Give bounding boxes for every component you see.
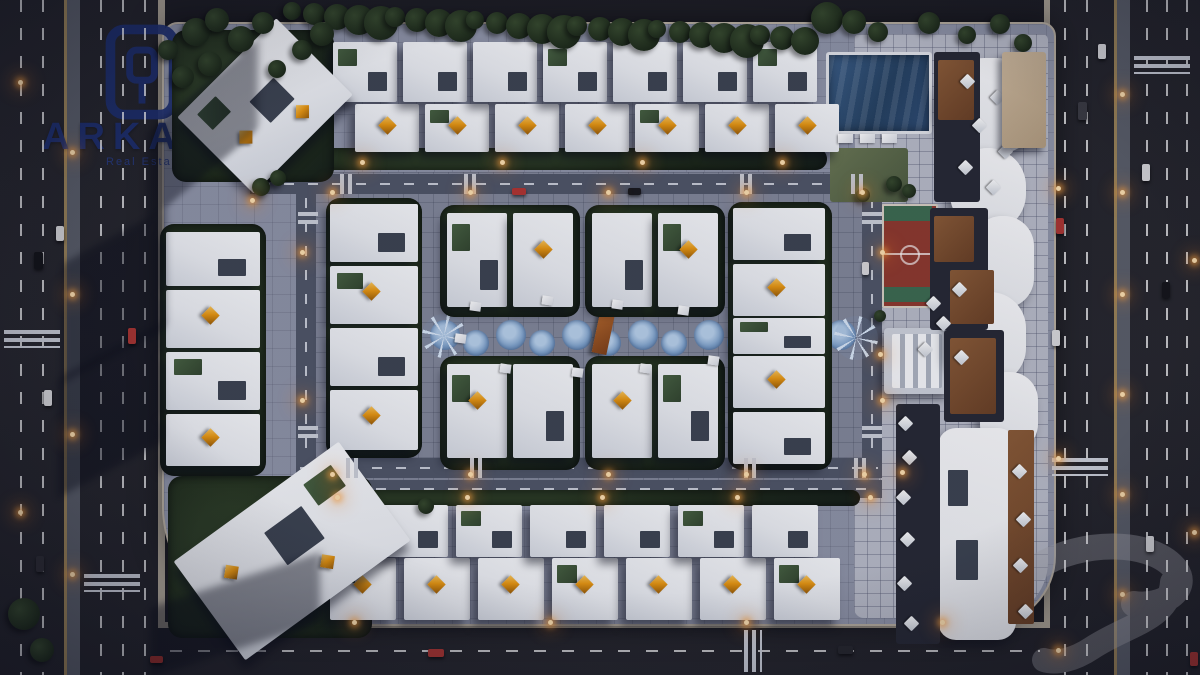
skylight-pyramid [224,565,239,580]
street-light [744,190,749,195]
street-light [640,160,645,165]
skylight-pyramid [534,240,552,258]
water-ripple [529,330,555,356]
water-ripple [496,320,526,350]
villa-building [330,204,418,262]
villa-building [700,558,766,620]
street-light [300,250,305,255]
street-light [468,190,473,195]
roof-court [492,531,512,548]
car [34,252,43,269]
roof-garden [452,375,470,401]
villa-building [447,364,507,458]
street-light [70,150,75,155]
villa-building [774,558,840,620]
pergola [884,328,950,394]
roof-garden [663,375,681,401]
skylight-pyramid [362,282,380,300]
seat-pad [541,295,553,305]
sun-lounger [860,134,875,143]
roof-garden [683,511,703,526]
skylight-pyramid [362,406,380,424]
street-light [868,495,873,500]
tree [886,176,902,192]
tree [198,52,222,76]
roof-court [784,234,812,251]
roof-garden [452,224,470,250]
street-light [330,472,335,477]
roof-court [714,531,734,548]
tree [8,598,40,630]
street-light [880,398,885,403]
tree [958,26,976,44]
villa-building [530,505,596,557]
seat-pad [677,305,689,315]
street-light [70,572,75,577]
street-light [878,352,883,357]
crosswalk [1052,458,1108,476]
street-light [1192,258,1197,263]
tree [30,638,54,662]
seat-pad [639,363,651,373]
car [1078,102,1087,120]
roof-garden [557,565,577,582]
lane-marking [305,198,307,456]
tree [669,21,691,43]
street-light [780,160,785,165]
skylight-pyramid [518,117,536,135]
roof-garden [303,465,346,506]
tree [811,2,843,34]
roof-garden [548,49,567,66]
skylight-pyramid [378,117,396,135]
villa-building [613,42,677,102]
tree [791,27,819,55]
skylight-pyramid [728,117,746,135]
villa-building [447,213,507,307]
villa-building [166,232,260,286]
tree [205,8,229,32]
skylight-pyramid [767,370,785,388]
street-light [606,472,611,477]
villa-building [552,558,618,620]
tree [270,170,286,186]
crosswalk [1134,56,1190,74]
street-light [18,80,23,85]
sun-lounger [882,134,897,143]
street-light [70,432,75,437]
street-light [360,160,365,165]
tree [418,498,434,514]
car [1098,44,1106,59]
roof-garden [430,110,449,123]
lane-marking [1166,0,1168,675]
car [1190,652,1198,666]
villa-building [752,505,818,557]
roof-garden [663,224,681,250]
street-light [1056,648,1061,653]
roof-court [718,72,737,91]
roof-garden [779,565,799,582]
villa-building [604,505,670,557]
water-starburst [834,316,878,360]
water-ripple [463,330,489,356]
tree [268,60,286,78]
pergola-slats [892,334,942,388]
roof-garden [640,110,659,123]
roof-court [546,411,564,441]
villa-building [513,213,573,307]
street-light [600,495,605,500]
car [512,188,526,195]
villa-building [592,364,652,458]
street-light [940,620,945,625]
skylight-pyramid [588,117,606,135]
crosswalk [346,458,362,478]
villa-building [733,264,825,316]
car [44,390,52,406]
car [1142,164,1150,181]
seat-pad [611,299,623,309]
car [628,188,641,195]
water-ripple [628,320,658,350]
car [150,656,163,663]
villa-building [330,390,418,450]
skylight-pyramid [679,240,697,258]
seat-pad [499,363,511,373]
water-ripple [694,320,724,350]
roof-court [508,72,527,91]
tree [466,11,484,29]
wood-deck [1008,430,1034,624]
wood-deck [938,60,974,120]
villa-building [425,104,489,152]
tree [310,22,334,46]
villa-building [658,213,718,307]
villa-building [495,104,559,152]
crosswalk [298,426,318,440]
wood-deck [950,338,996,414]
street-light [250,198,255,203]
street-light [1120,592,1125,597]
street-light [1120,190,1125,195]
villa-building [592,213,652,307]
car [128,328,136,344]
villa-building [635,104,699,152]
villa-building [166,414,260,466]
roof-garden [758,49,777,66]
skylight-pyramid [613,391,631,409]
street-light [352,620,357,625]
street-light [1192,530,1197,535]
street-light [900,470,905,475]
car [56,226,64,241]
villa-building [403,42,467,102]
roof-court [578,72,597,91]
neighbour-building [1002,52,1046,148]
wood-deck [950,270,994,324]
skylight-pyramid [798,117,816,135]
villa-building [565,104,629,152]
crosswalk [862,426,882,440]
villa-building [513,364,573,458]
roof-court [378,233,404,252]
villa-building [733,318,825,354]
lane-marking [1064,0,1066,675]
street-light [1120,292,1125,297]
street-light [1120,92,1125,97]
seat-pad [454,333,466,343]
villa-building [626,558,692,620]
skylight-pyramid [576,575,594,593]
seat-pad [571,367,583,377]
street-light [1056,456,1061,461]
roof-garden [337,273,363,289]
street-light [1120,492,1125,497]
villa-building [404,558,470,620]
roof-garden [338,49,357,66]
lane-marking [170,650,1040,652]
roof-court [566,531,586,548]
villa-building [678,505,744,557]
villa-building [705,104,769,152]
villa-building [166,290,260,348]
roof-court [480,260,498,290]
street-light [744,472,749,477]
villa-building [473,42,537,102]
aerial-masterplan-render: ARKAN Real Estate Development [0,0,1200,675]
wood-deck [934,216,974,262]
street-light [606,190,611,195]
crosswalk [4,330,60,348]
street-light [548,620,553,625]
roof-court [378,357,404,376]
street-light [300,398,305,403]
skylight-pyramid [201,428,219,446]
villa-building [775,104,839,152]
street-light [880,250,885,255]
roof-court [788,72,807,91]
car [838,646,853,654]
court-end-zone [884,206,932,221]
roof-court [784,438,812,455]
tree [252,178,270,196]
roof-court [218,259,246,276]
tree [252,12,274,34]
street-light [744,620,749,625]
tree [1014,34,1032,52]
street-light [1056,186,1061,191]
villa-building [456,505,522,557]
skylight-pyramid [201,306,219,324]
tree [918,12,940,34]
skylight-pyramid [502,575,520,593]
tree [902,184,916,198]
roof-court [368,72,387,91]
roof-garden [740,322,768,332]
tree [283,2,301,20]
villa-building [166,352,260,410]
tree [172,66,194,88]
roof-court [691,411,709,441]
villa-building [658,364,718,458]
skylight-pyramid [724,575,742,593]
skylight-pyramid [428,575,446,593]
villa-building [478,558,544,620]
skylight-pyramid [798,575,816,593]
street-light [335,495,340,500]
seat-pad [707,355,719,365]
roof-court [218,381,246,400]
roof-court [418,531,438,548]
tree [750,25,770,45]
crosswalk [298,212,318,226]
villa-building [355,104,419,152]
street-light [735,495,740,500]
crosswalk [744,630,762,672]
tree [385,7,405,27]
car [1056,218,1064,234]
roof-court [625,260,643,290]
street-light [1120,392,1125,397]
tree [228,26,254,52]
street-light [330,190,335,195]
skylight-pyramid [320,554,335,569]
tree [158,40,178,60]
skylight-pyramid [468,391,486,409]
car [862,262,869,275]
crosswalk [84,574,140,592]
car [1052,330,1060,346]
car [1146,536,1154,552]
tree [874,310,886,322]
skylight-pyramid [767,278,785,296]
car [36,556,44,572]
roof-garden [174,359,202,375]
roof-court [784,336,812,348]
roof-court [640,531,660,548]
street-light [70,292,75,297]
skylight-pyramid [448,117,466,135]
street-light [18,510,23,515]
street-light [500,160,505,165]
roof-court [648,72,667,91]
street-light [468,472,473,477]
roof-garden [461,511,481,526]
court-end-zone [884,287,932,302]
sun-lounger [838,134,853,143]
tree [842,10,866,34]
swimming-pool [826,52,932,134]
skylight-pyramid [650,575,668,593]
ghost-brand-glyph [1022,524,1200,674]
street-light [465,495,470,500]
villa-building [733,356,825,408]
skylight-pyramid [296,105,309,118]
water-ripple [661,330,687,356]
seat-pad [469,301,481,311]
tree [990,14,1010,34]
tree [292,40,312,60]
tree [868,22,888,42]
lane-marking [1146,0,1148,675]
roof-unit [948,470,968,506]
roof-court [788,531,808,548]
water-ripple [562,320,592,350]
villa-building [733,412,825,464]
villa-building [543,42,607,102]
villa-building [330,266,418,324]
villa-building [330,328,418,386]
crosswalk [862,212,882,226]
car [1162,282,1170,298]
roof-court [438,72,457,91]
promenade-canopy [938,428,1016,640]
tree [486,12,508,34]
court-center-circle [900,245,920,265]
crosswalk [340,174,356,194]
villa-building [733,208,825,260]
lane-marking [1086,0,1088,675]
street-light [862,472,867,477]
seating-terrace [896,404,940,644]
car [428,649,444,657]
roof-unit [956,540,978,580]
skylight-pyramid [658,117,676,135]
lane-marking [1186,0,1188,675]
street-light [860,190,865,195]
